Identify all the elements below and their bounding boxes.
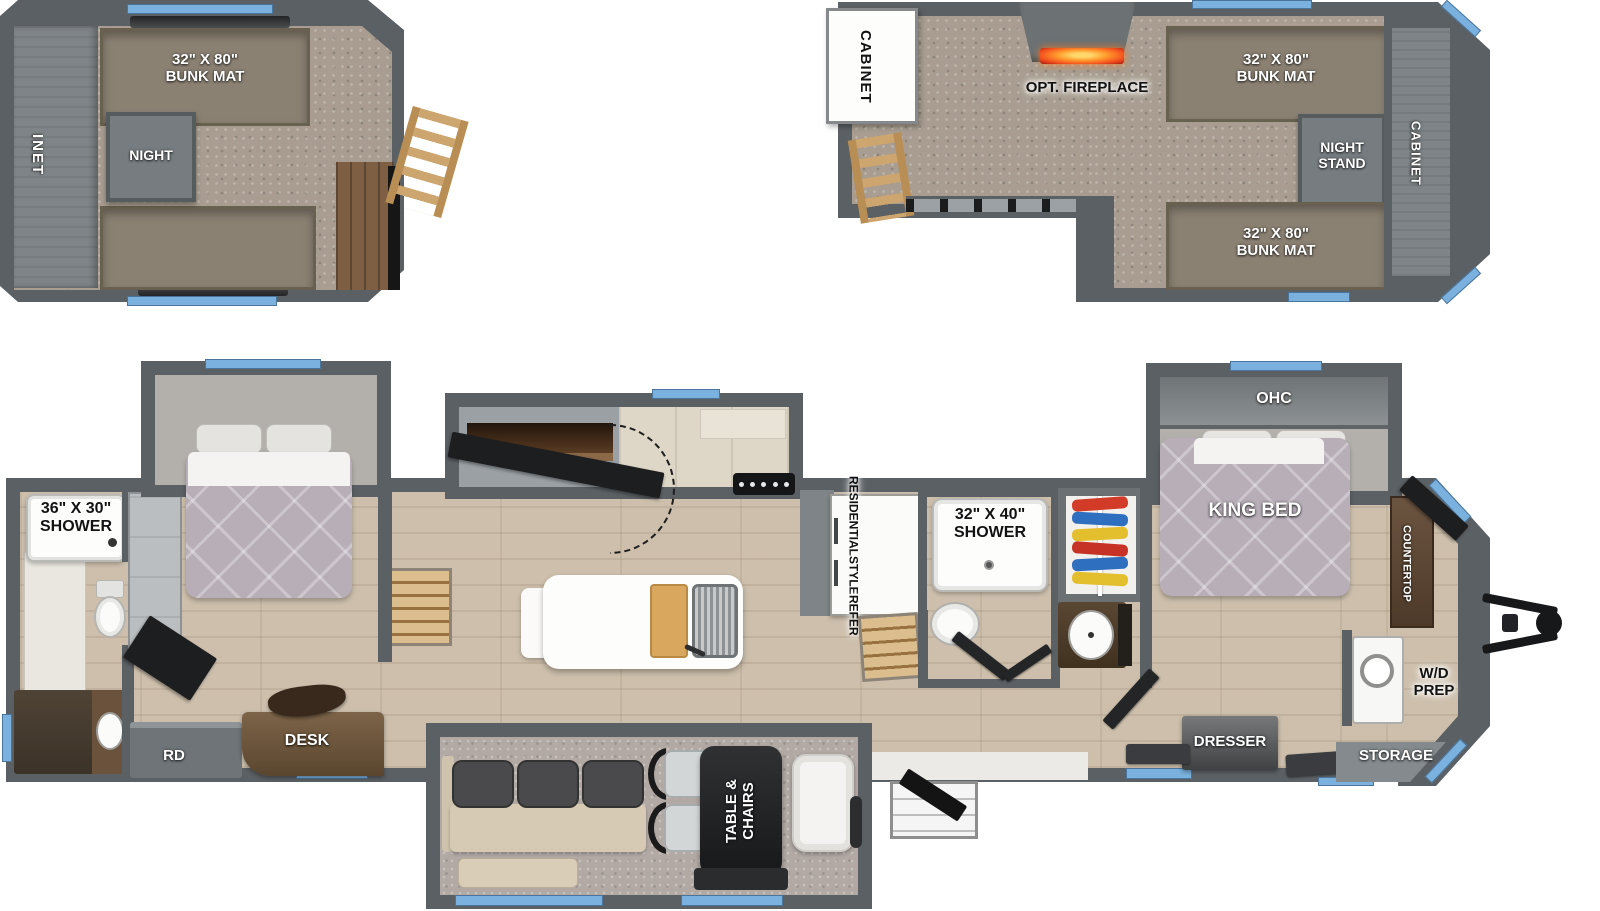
front-loft-nightstand-label: NIGHT STAND xyxy=(1300,140,1384,171)
countertop-label: COUNTERTOP xyxy=(1400,506,1424,620)
king-sheet xyxy=(1194,438,1324,464)
fridge-wall xyxy=(800,490,834,616)
bunk-name-line: BUNK MAT xyxy=(1186,69,1366,86)
rear-toilet-bowl xyxy=(94,596,126,638)
rear-bath-shower-label: 36" X 30" SHOWER xyxy=(30,500,122,536)
sofa-seat xyxy=(450,804,646,852)
cutting-board-icon xyxy=(650,584,688,658)
main-window-left-wall xyxy=(2,714,12,762)
galley-counter-panel xyxy=(700,409,786,439)
king-window xyxy=(1230,361,1322,371)
cooktop-knob xyxy=(773,482,778,487)
rear-bed-sheet xyxy=(188,452,350,486)
rear-bed-window xyxy=(205,359,321,369)
shower-size-line: 32" X 40" xyxy=(936,506,1044,524)
rear-shower-drain xyxy=(108,538,117,547)
front-loft-bunk-bottom-label: 32" X 80" BUNK MAT xyxy=(1186,226,1366,260)
rd-label: RD xyxy=(134,748,214,765)
washer-drum-icon xyxy=(1360,654,1394,688)
king-bed-label: KING BED xyxy=(1170,500,1340,521)
refrigerator-handle xyxy=(834,560,838,586)
wd-line: PREP xyxy=(1402,683,1466,700)
desk-label: DESK xyxy=(252,732,362,750)
sofa-cushion xyxy=(582,760,644,808)
front-loft-window-bottom xyxy=(1288,292,1350,302)
mid-vanity-faucet xyxy=(1088,632,1094,638)
kitchen-window xyxy=(652,389,720,399)
door-mat xyxy=(1126,744,1190,764)
rear-stairs-icon xyxy=(388,568,452,646)
mid-bath-shower-label: 32" X 40" SHOWER xyxy=(936,506,1044,542)
main-window-bottom-bedroom xyxy=(1126,768,1192,779)
mid-vanity-mirror xyxy=(1118,604,1132,666)
cooktop-knob xyxy=(750,482,755,487)
front-loft-stair-rail xyxy=(906,196,1082,212)
refrigerator-handle xyxy=(834,518,838,544)
recliner-handle xyxy=(850,796,862,848)
shower-size-line: 36" X 30" xyxy=(30,500,122,518)
rear-vanity xyxy=(14,690,94,774)
front-loft-bunk-top-label: 32" X 80" BUNK MAT xyxy=(1186,52,1366,86)
wd-line: W/D xyxy=(1402,666,1466,683)
rear-bed-pillow-left xyxy=(196,424,262,454)
rear-loft-nightstand-label: NIGHT xyxy=(108,148,194,164)
nightstand-line: NIGHT xyxy=(1300,140,1384,156)
front-loft-cap-cabinet-label: CABINET xyxy=(1408,98,1434,208)
wd-closet-wall xyxy=(1342,630,1352,726)
fireplace-flame-icon xyxy=(1040,48,1124,64)
table-chairs-label: TABLE & CHAIRS xyxy=(712,746,770,876)
sofa-footrest xyxy=(458,858,578,888)
bunk-name-line: BUNK MAT xyxy=(120,69,290,86)
rear-sink xyxy=(96,712,124,750)
hitch-coupler-icon xyxy=(1536,610,1562,636)
rear-loft-cabinet-label: INET xyxy=(28,100,58,210)
rear-loft-window-bottom xyxy=(127,296,277,306)
front-loft-stairwell-wall xyxy=(1076,196,1114,302)
fireplace-label: OPT. FIREPLACE xyxy=(1003,80,1171,97)
cooktop-knob xyxy=(784,482,789,487)
floorplan-canvas: INET 32" X 80" BUNK MAT NIGHT CABINET OP… xyxy=(0,0,1600,911)
sofa-cushion xyxy=(452,760,514,808)
hitch-jack xyxy=(1502,614,1518,632)
cooktop xyxy=(733,473,795,495)
wd-prep-label: W/D PREP xyxy=(1402,666,1466,700)
refer-line: RESIDENTIAL xyxy=(846,476,908,556)
rear-bed-pillow-right xyxy=(266,424,332,454)
cooktop-knob xyxy=(739,482,744,487)
shower-name-line: SHOWER xyxy=(30,518,122,536)
cooktop-knob xyxy=(761,482,766,487)
sofa-slide-window-left xyxy=(455,895,603,906)
rear-loft-stair-landing xyxy=(336,162,394,290)
shower-name-line: SHOWER xyxy=(936,524,1044,542)
nightstand-line: STAND xyxy=(1300,156,1384,172)
wall-mid-bedroom xyxy=(1140,488,1152,688)
rear-bath-linen xyxy=(24,552,86,698)
table-label-line: TABLE & xyxy=(724,746,741,876)
sofa-cushion xyxy=(517,760,579,808)
bunk-size-line: 32" X 80" xyxy=(1186,52,1366,69)
storage-label: STORAGE xyxy=(1344,748,1448,765)
refer-line: STYLE xyxy=(846,556,908,595)
front-loft-window-top xyxy=(1192,0,1312,9)
rear-loft-vent-top xyxy=(130,16,290,28)
refer-label: RESIDENTIAL STYLE REFER xyxy=(846,500,908,612)
rear-loft-window-top xyxy=(127,4,273,14)
dresser-label: DRESSER xyxy=(1184,734,1276,751)
rear-loft-bunk-bottom xyxy=(100,206,316,290)
front-loft-cabinet-left-label: CABINET xyxy=(856,20,886,114)
island-sink xyxy=(692,584,738,658)
recliner-chair xyxy=(792,754,854,852)
ohc-label: OHC xyxy=(1240,390,1308,408)
mid-shower-drain xyxy=(984,560,994,570)
bunk-name-line: BUNK MAT xyxy=(1186,243,1366,260)
bunk-size-line: 32" X 80" xyxy=(120,52,290,69)
wall-bedroom-living xyxy=(378,492,392,662)
bunk-size-line: 32" X 80" xyxy=(1186,226,1366,243)
rear-loft-bunk-top-label: 32" X 80" BUNK MAT xyxy=(120,52,290,86)
mid-stairs-icon xyxy=(858,612,922,682)
sofa-slide-window-right xyxy=(681,895,783,906)
table-label-line: CHAIRS xyxy=(741,746,758,876)
